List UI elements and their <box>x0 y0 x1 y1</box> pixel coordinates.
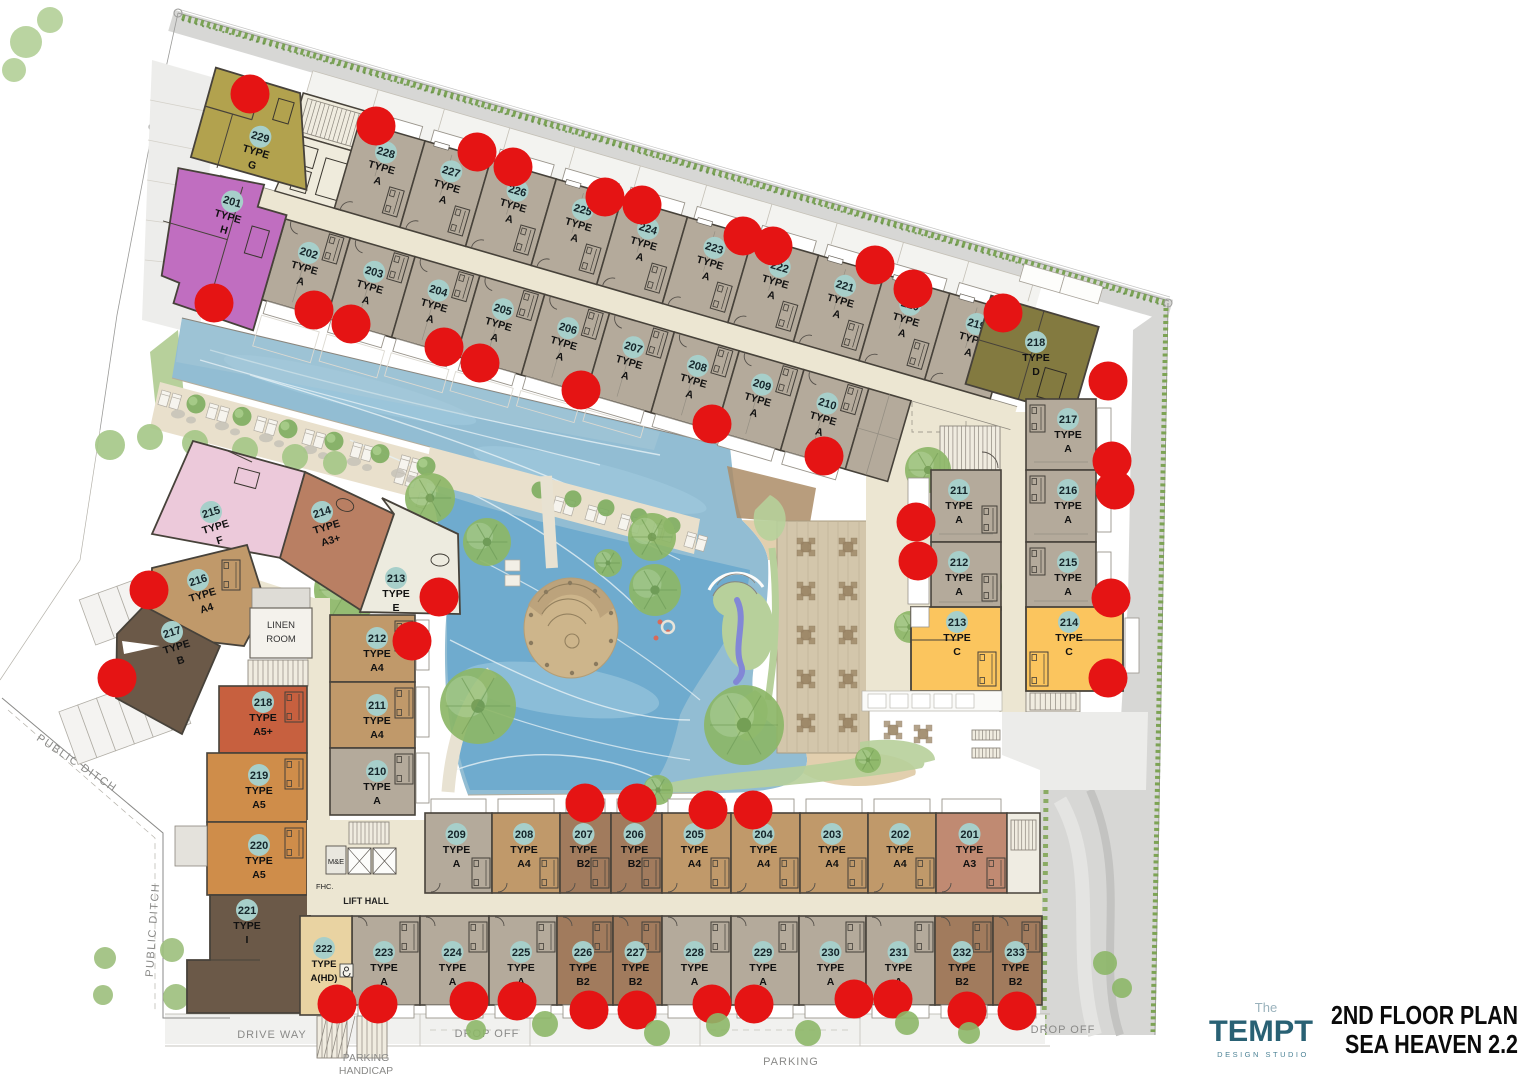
svg-text:215: 215 <box>1059 557 1077 569</box>
svg-text:212: 212 <box>950 557 968 569</box>
svg-text:TYPE: TYPE <box>363 648 390 660</box>
svg-text:228: 228 <box>685 947 703 959</box>
svg-text:225: 225 <box>512 947 530 959</box>
svg-text:SEA HEAVEN 2.2: SEA HEAVEN 2.2 <box>1345 1029 1518 1059</box>
svg-text:B2: B2 <box>1009 976 1023 988</box>
svg-text:A4: A4 <box>517 858 531 870</box>
svg-text:TYPE: TYPE <box>886 844 913 856</box>
svg-text:221: 221 <box>238 905 256 917</box>
svg-text:B2: B2 <box>577 858 591 870</box>
svg-text:A5+: A5+ <box>253 726 273 738</box>
svg-text:TYPE: TYPE <box>569 962 596 974</box>
svg-text:TYPE: TYPE <box>439 962 466 974</box>
svg-text:E: E <box>392 602 399 614</box>
svg-text:HANDICAP: HANDICAP <box>339 1065 393 1077</box>
svg-text:TYPE: TYPE <box>885 962 912 974</box>
svg-text:227: 227 <box>626 947 644 959</box>
svg-text:C: C <box>953 646 961 658</box>
svg-text:211: 211 <box>368 700 386 712</box>
svg-text:TYPE: TYPE <box>750 844 777 856</box>
svg-text:219: 219 <box>250 770 268 782</box>
svg-text:232: 232 <box>953 947 971 959</box>
svg-text:LINEN: LINEN <box>267 620 295 631</box>
svg-text:A: A <box>955 514 963 526</box>
svg-text:A4: A4 <box>370 729 384 741</box>
svg-text:TYPE: TYPE <box>363 715 390 727</box>
svg-text:B2: B2 <box>955 976 969 988</box>
svg-text:201: 201 <box>960 829 978 841</box>
svg-text:TYPE: TYPE <box>945 500 972 512</box>
svg-text:218: 218 <box>1027 337 1045 349</box>
svg-text:TYPE: TYPE <box>249 712 276 724</box>
svg-text:A4: A4 <box>893 858 907 870</box>
svg-text:TYPE: TYPE <box>1022 352 1049 364</box>
svg-text:TYPE: TYPE <box>570 844 597 856</box>
svg-text:210: 210 <box>368 766 386 778</box>
svg-text:ROOM: ROOM <box>266 634 296 645</box>
svg-text:TYPE: TYPE <box>621 844 648 856</box>
svg-text:A4: A4 <box>757 858 771 870</box>
svg-text:A: A <box>453 858 461 870</box>
svg-text:218: 218 <box>254 697 272 709</box>
svg-text:214: 214 <box>1060 617 1079 629</box>
svg-text:217: 217 <box>1059 414 1077 426</box>
svg-text:A4: A4 <box>688 858 702 870</box>
svg-text:A: A <box>1064 443 1072 455</box>
svg-text:TYPE: TYPE <box>681 962 708 974</box>
svg-text:TYPE: TYPE <box>956 844 983 856</box>
svg-text:A5: A5 <box>252 869 266 881</box>
svg-text:A: A <box>1064 586 1072 598</box>
svg-text:TYPE: TYPE <box>443 844 470 856</box>
svg-text:A: A <box>691 976 699 988</box>
svg-text:TYPE: TYPE <box>370 962 397 974</box>
svg-text:TYPE: TYPE <box>1054 429 1081 441</box>
svg-text:TYPE: TYPE <box>681 844 708 856</box>
svg-text:A(HD): A(HD) <box>311 973 338 984</box>
svg-text:222: 222 <box>316 944 333 955</box>
svg-text:229: 229 <box>754 947 772 959</box>
svg-text:203: 203 <box>823 829 841 841</box>
svg-text:TYPE: TYPE <box>510 844 537 856</box>
svg-text:213: 213 <box>387 573 405 585</box>
svg-text:TYPE: TYPE <box>622 962 649 974</box>
svg-text:TYPE: TYPE <box>1002 962 1029 974</box>
svg-text:TYPE: TYPE <box>948 962 975 974</box>
svg-text:TYPE: TYPE <box>382 588 409 600</box>
svg-text:223: 223 <box>375 947 393 959</box>
svg-text:A5: A5 <box>252 799 266 811</box>
svg-text:TYPE: TYPE <box>507 962 534 974</box>
svg-text:A: A <box>1064 514 1072 526</box>
svg-text:231: 231 <box>889 947 907 959</box>
svg-text:M&E: M&E <box>328 857 344 866</box>
svg-text:220: 220 <box>250 840 268 852</box>
svg-text:The: The <box>1255 1000 1277 1015</box>
svg-text:B2: B2 <box>576 976 590 988</box>
svg-text:TYPE: TYPE <box>749 962 776 974</box>
svg-text:211: 211 <box>950 485 968 497</box>
svg-text:TYPE: TYPE <box>818 844 845 856</box>
svg-text:202: 202 <box>891 829 909 841</box>
svg-text:TYPE: TYPE <box>945 572 972 584</box>
svg-text:A: A <box>449 976 457 988</box>
svg-text:A4: A4 <box>825 858 839 870</box>
svg-text:226: 226 <box>574 947 592 959</box>
svg-text:TYPE: TYPE <box>312 959 337 970</box>
svg-text:TYPE: TYPE <box>943 632 970 644</box>
svg-text:TYPE: TYPE <box>245 855 272 867</box>
svg-text:2ND FLOOR PLAN: 2ND FLOOR PLAN <box>1331 1000 1518 1030</box>
svg-text:A: A <box>955 586 963 598</box>
svg-text:233: 233 <box>1006 947 1024 959</box>
svg-text:TYPE: TYPE <box>1054 500 1081 512</box>
svg-text:PARKING: PARKING <box>343 1052 389 1064</box>
svg-text:230: 230 <box>821 947 839 959</box>
svg-text:TYPE: TYPE <box>363 781 390 793</box>
svg-text:TYPE: TYPE <box>1054 572 1081 584</box>
svg-text:FHC.: FHC. <box>316 882 334 891</box>
svg-text:209: 209 <box>447 829 465 841</box>
svg-text:TYPE: TYPE <box>233 920 260 932</box>
svg-text:A4: A4 <box>370 662 384 674</box>
svg-text:B2: B2 <box>629 976 643 988</box>
svg-text:212: 212 <box>368 633 386 645</box>
svg-text:I: I <box>246 934 249 946</box>
svg-text:205: 205 <box>685 829 703 841</box>
svg-text:TYPE: TYPE <box>1055 632 1082 644</box>
svg-text:A: A <box>827 976 835 988</box>
svg-text:207: 207 <box>574 829 592 841</box>
svg-text:DROP OFF: DROP OFF <box>1031 1024 1096 1036</box>
svg-text:TYPE: TYPE <box>245 785 272 797</box>
svg-text:216: 216 <box>1059 485 1077 497</box>
svg-text:204: 204 <box>754 829 773 841</box>
svg-text:LIFT HALL: LIFT HALL <box>343 896 389 906</box>
svg-text:208: 208 <box>515 829 533 841</box>
svg-text:DROP OFF: DROP OFF <box>455 1028 520 1040</box>
svg-text:D: D <box>1032 366 1040 378</box>
svg-text:A3: A3 <box>963 858 977 870</box>
svg-text:PARKING: PARKING <box>763 1056 819 1068</box>
svg-text:TEMPT: TEMPT <box>1209 1015 1313 1048</box>
svg-text:206: 206 <box>625 829 643 841</box>
svg-text:DESIGN STUDIO: DESIGN STUDIO <box>1217 1050 1309 1059</box>
svg-text:A: A <box>373 795 381 807</box>
svg-text:224: 224 <box>443 947 462 959</box>
svg-text:TYPE: TYPE <box>817 962 844 974</box>
svg-text:B2: B2 <box>628 858 642 870</box>
svg-text:C: C <box>1065 646 1073 658</box>
svg-text:213: 213 <box>948 617 966 629</box>
svg-text:DRIVE WAY: DRIVE WAY <box>237 1029 307 1041</box>
